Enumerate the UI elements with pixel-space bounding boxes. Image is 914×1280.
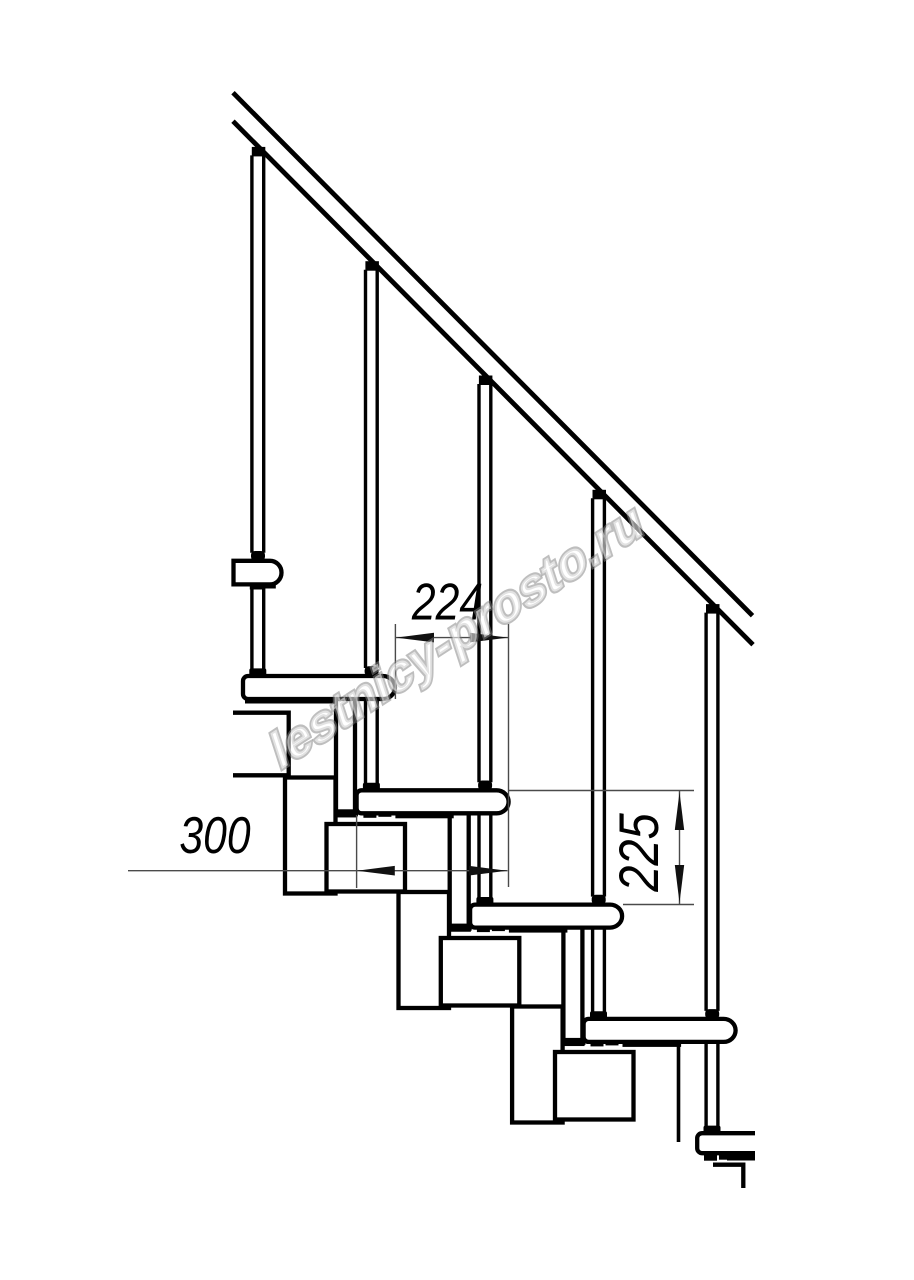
svg-text:300: 300 [179, 807, 251, 865]
svg-text:225: 225 [607, 813, 670, 893]
